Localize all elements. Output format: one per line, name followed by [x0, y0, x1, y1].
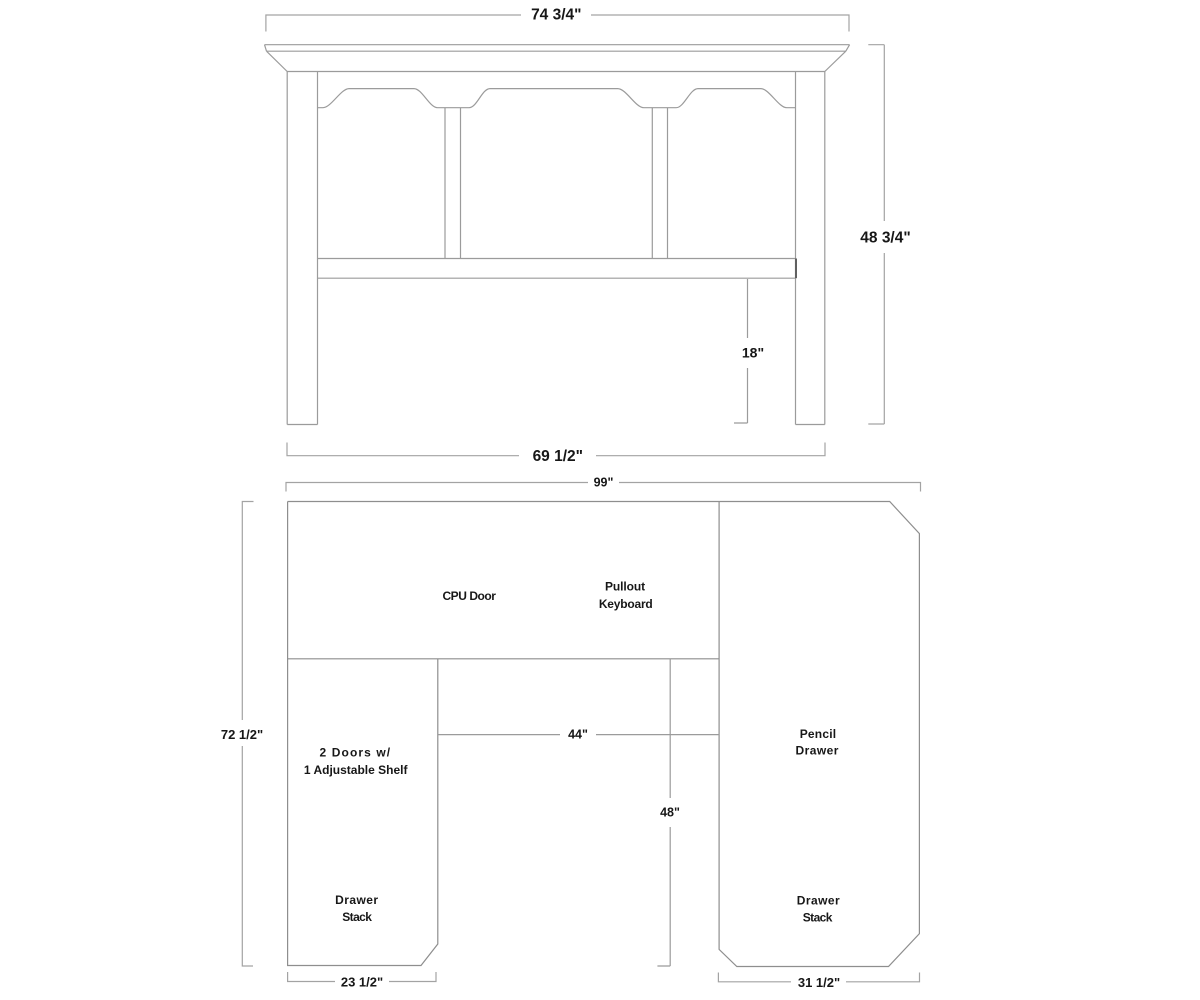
svg-text:23 1/2": 23 1/2" [341, 975, 383, 990]
svg-text:Keyboard: Keyboard [599, 597, 653, 611]
svg-text:Stack: Stack [342, 910, 372, 924]
svg-text:1 Adjustable Shelf: 1 Adjustable Shelf [304, 763, 409, 777]
svg-text:Drawer: Drawer [796, 743, 839, 757]
svg-text:CPU Door: CPU Door [442, 589, 496, 603]
svg-text:74 3/4": 74 3/4" [531, 7, 581, 24]
svg-text:44": 44" [568, 728, 588, 742]
svg-text:Stack: Stack [803, 910, 833, 924]
svg-text:2 Doors w/: 2 Doors w/ [320, 745, 392, 759]
svg-text:Drawer: Drawer [335, 893, 378, 907]
svg-text:72 1/2": 72 1/2" [221, 727, 263, 742]
svg-text:48": 48" [660, 806, 680, 820]
svg-text:18": 18" [742, 345, 764, 361]
svg-text:69 1/2": 69 1/2" [533, 448, 583, 465]
svg-text:Pullout: Pullout [605, 580, 645, 594]
svg-text:48 3/4": 48 3/4" [860, 230, 910, 247]
svg-text:Drawer: Drawer [797, 893, 840, 907]
svg-text:99": 99" [594, 476, 614, 490]
svg-text:Pencil: Pencil [800, 727, 837, 741]
svg-text:31 1/2": 31 1/2" [798, 975, 840, 990]
